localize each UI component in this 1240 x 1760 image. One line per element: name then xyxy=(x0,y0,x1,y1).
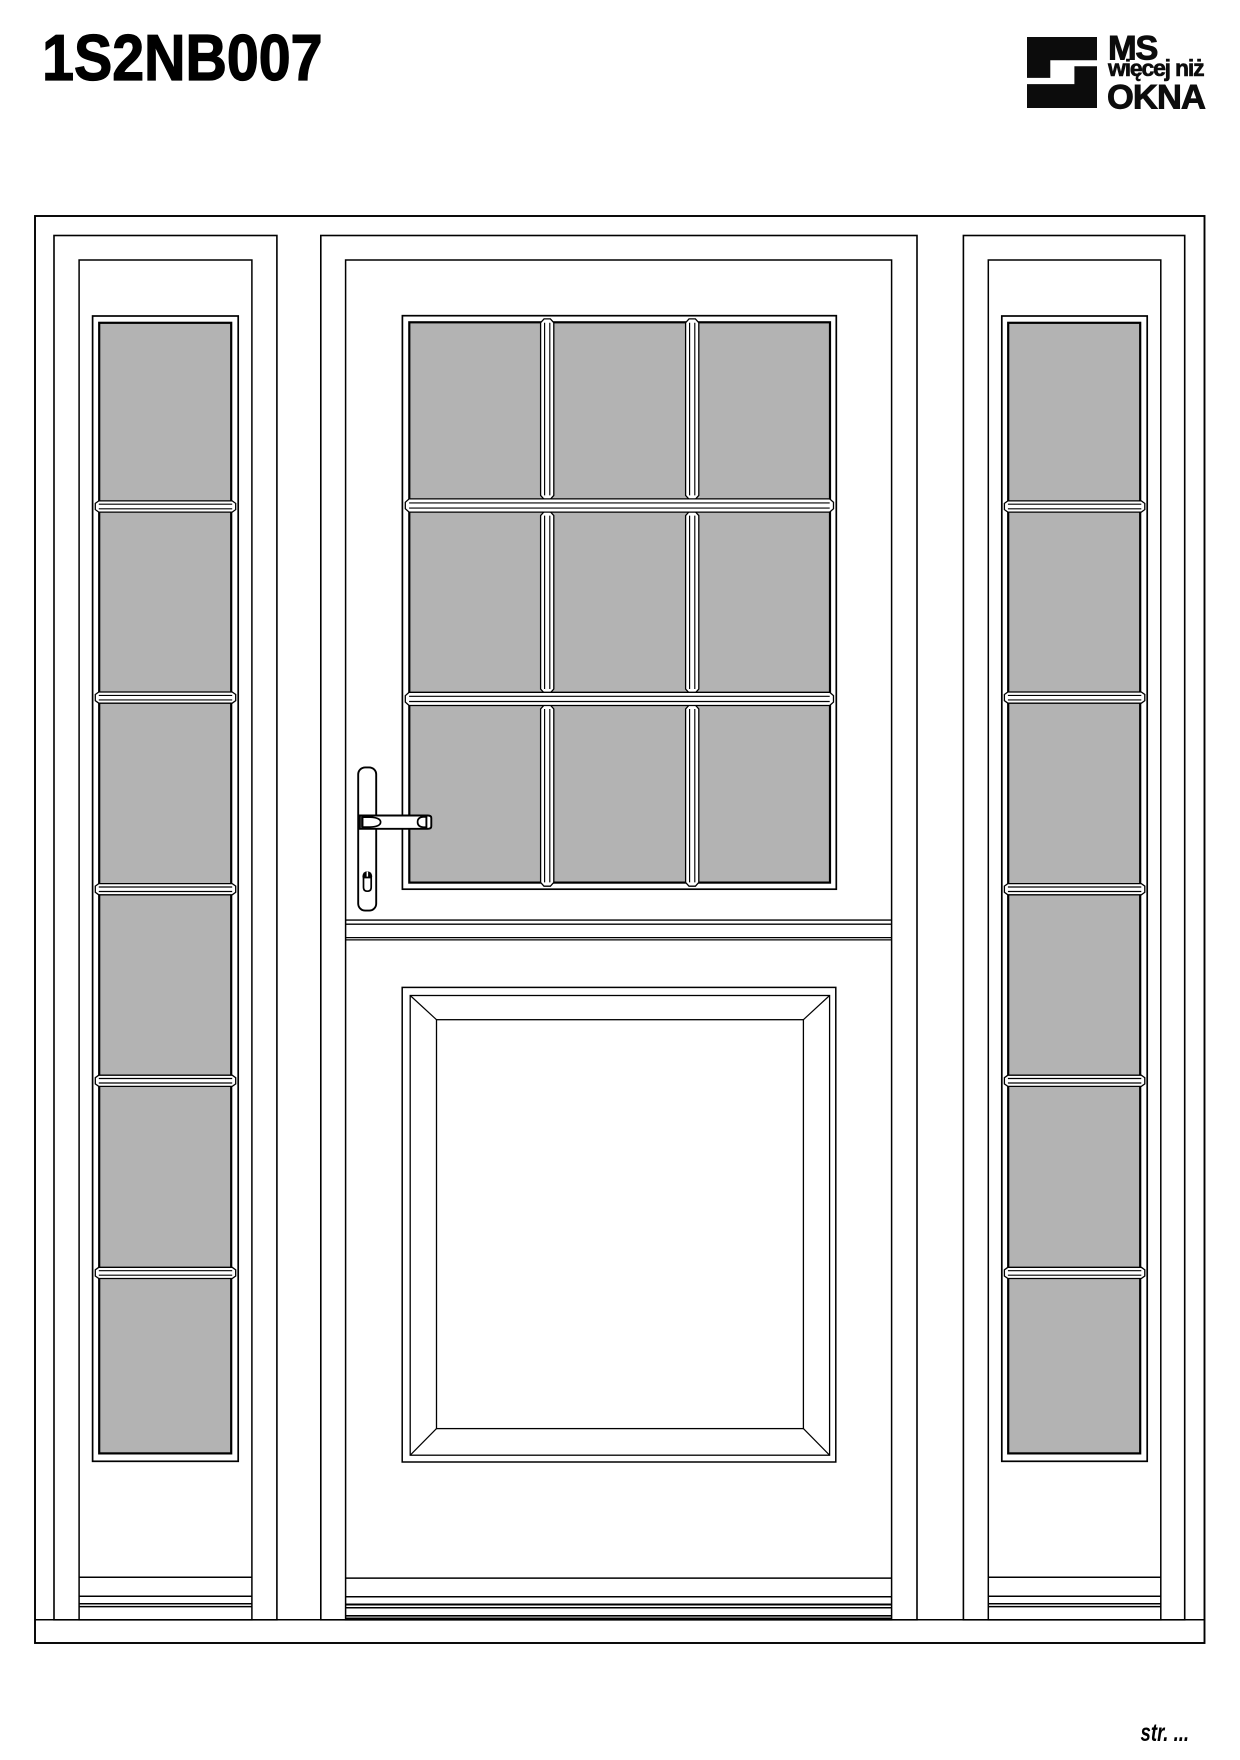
svg-text:więcej niż: więcej niż xyxy=(1107,55,1204,81)
svg-text:str. ...: str. ... xyxy=(1141,1718,1190,1746)
svg-text:OKNA: OKNA xyxy=(1107,79,1205,117)
svg-text:1S2NB007: 1S2NB007 xyxy=(42,22,322,94)
